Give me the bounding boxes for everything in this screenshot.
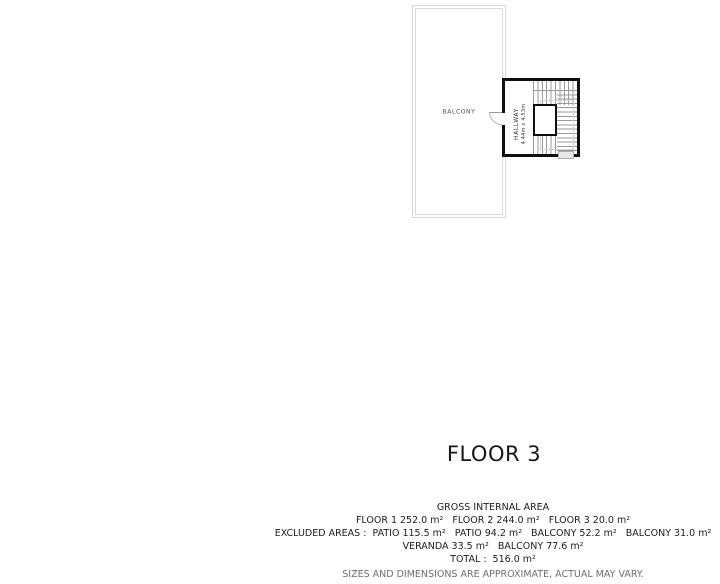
door-opening-gap <box>502 113 505 125</box>
disclaimer-text: SIZES AND DIMENSIONS ARE APPROXIMATE, AC… <box>193 568 720 581</box>
area-summary: GROSS INTERNAL AREA FLOOR 1 252.0 m² FLO… <box>193 501 720 581</box>
summary-total: TOTAL : 516.0 m² <box>193 553 720 566</box>
floorplan-page: BALCONY HALLWAY 4.44m x 4.53m FLOOR 3 GR… <box>0 0 720 584</box>
summary-floor-areas: FLOOR 1 252.0 m² FLOOR 2 244.0 m² FLOOR … <box>193 514 720 527</box>
summary-excluded-areas: EXCLUDED AREAS : PATIO 115.5 m² PATIO 94… <box>193 527 720 540</box>
hallway-dimensions-text: 4.44m x 4.53m <box>521 104 527 145</box>
summary-excluded-areas-2: VERANDA 33.5 m² BALCONY 77.6 m² <box>193 540 720 553</box>
stair-landing-line <box>533 90 577 91</box>
window-bottom-wall <box>558 151 574 159</box>
hallway-room-label: HALLWAY 4.44m x 4.53m <box>506 96 534 152</box>
stair-void <box>533 104 557 136</box>
hallway-label-text: HALLWAY <box>513 108 520 140</box>
summary-heading: GROSS INTERNAL AREA <box>193 501 720 514</box>
floor-title: FLOOR 3 <box>354 442 634 466</box>
